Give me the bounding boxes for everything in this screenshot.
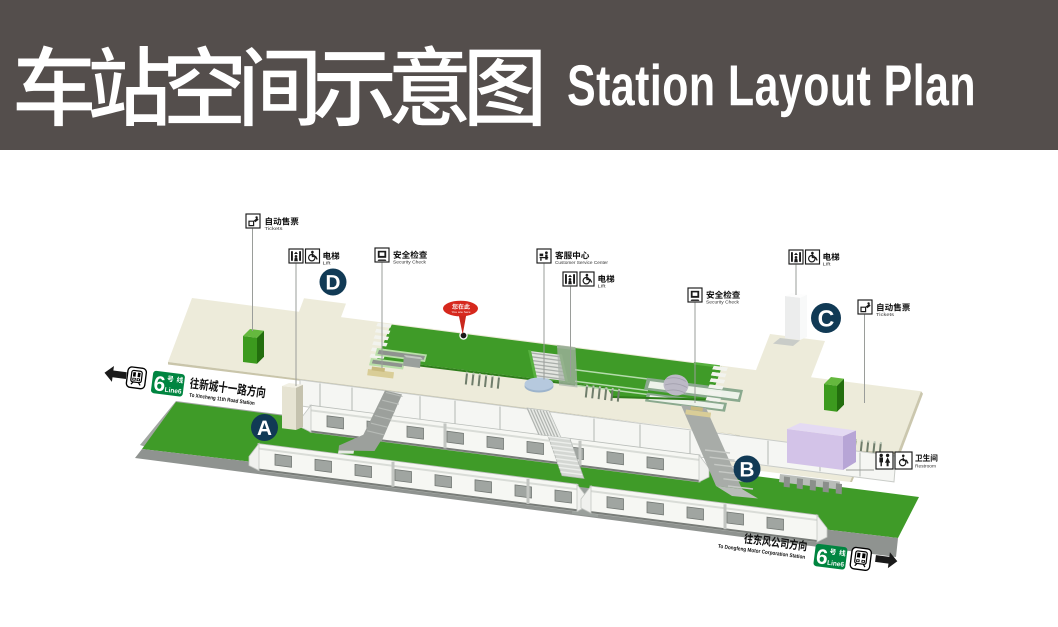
svg-text:Security Check: Security Check	[706, 300, 740, 305]
svg-text:Lift: Lift	[598, 284, 607, 289]
svg-text:Tickets: Tickets	[265, 226, 283, 231]
svg-text:Customer Service Center: Customer Service Center	[555, 260, 609, 265]
svg-text:Restroom: Restroom	[915, 464, 937, 469]
svg-text:Security Check: Security Check	[393, 260, 427, 265]
svg-text:Lift: Lift	[323, 261, 332, 266]
svg-text:You are here: You are here	[452, 310, 471, 314]
svg-text:Lift: Lift	[823, 262, 832, 267]
svg-text:Tickets: Tickets	[876, 312, 894, 317]
